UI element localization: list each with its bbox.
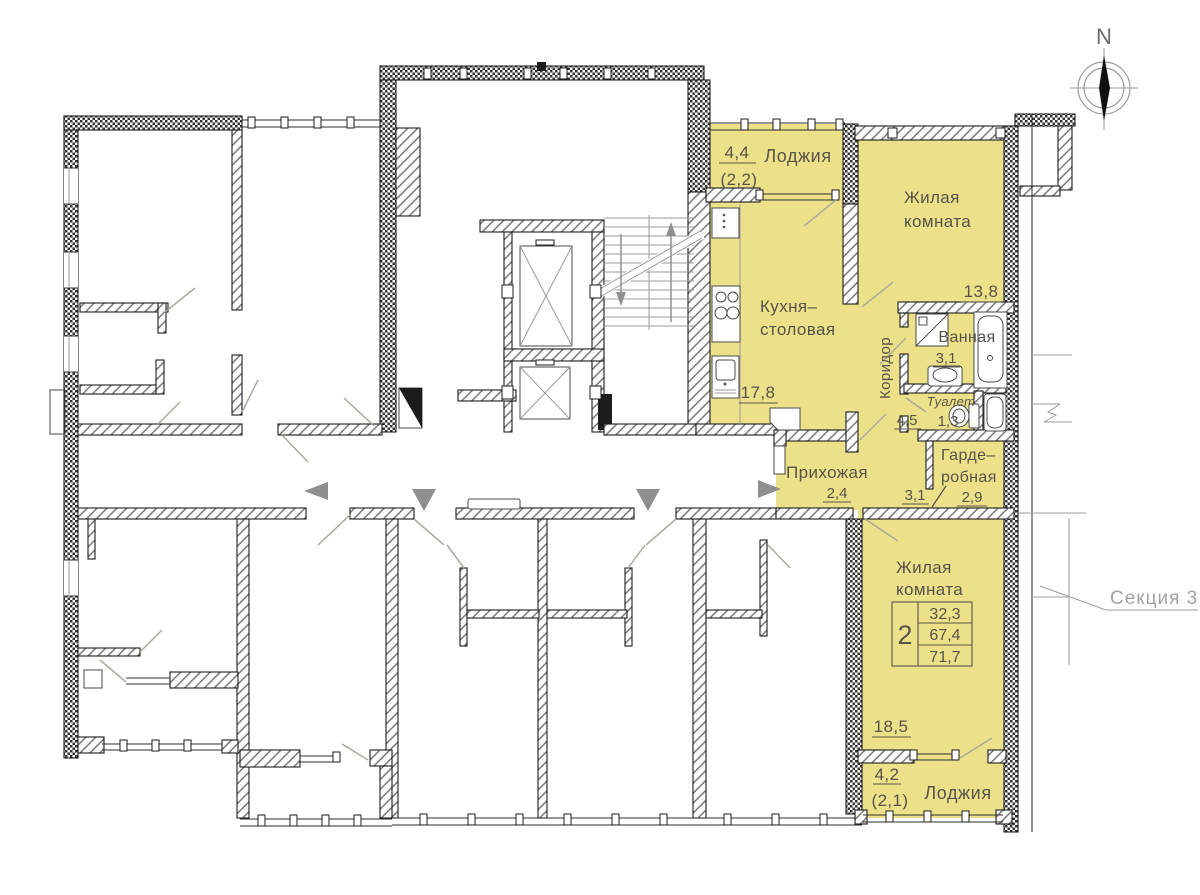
room-label-wc: Туалет bbox=[927, 394, 976, 409]
elevators bbox=[502, 240, 601, 419]
stairs-up-arrow bbox=[666, 222, 676, 236]
stairwell bbox=[598, 215, 702, 330]
north-label: N bbox=[1096, 24, 1112, 49]
room-label-loggia-bottom: Лоджия bbox=[924, 783, 991, 803]
area-reduced-loggia-bottom: (2,1) bbox=[872, 791, 909, 810]
area-hallway: 2,4 bbox=[827, 485, 848, 502]
summary-total-area: 71,7 bbox=[929, 649, 960, 666]
room-label-corridor: Коридор bbox=[877, 337, 894, 399]
north-arrow: N bbox=[1070, 24, 1138, 130]
room-label-living-bottom-1: Жилая bbox=[896, 558, 952, 577]
area-reduced-loggia-top: (2,2) bbox=[721, 170, 758, 189]
summary-living-area: 32,3 bbox=[929, 606, 960, 623]
room-label-kitchen-2: столовая bbox=[760, 320, 835, 339]
room-label-living-top-1: Жилая bbox=[904, 188, 960, 207]
room-label-living-top-2: комната bbox=[904, 212, 971, 231]
room-label-kitchen-1: Кухня– bbox=[760, 297, 817, 316]
area-wardrobe-adjacent: 3,1 bbox=[905, 487, 926, 504]
area-loggia-bottom: 4,2 bbox=[875, 765, 900, 784]
area-bathroom: 3,1 bbox=[936, 350, 957, 367]
room-label-loggia-top: Лоджия bbox=[764, 146, 831, 166]
room-label-living-bottom-2: комната bbox=[896, 580, 963, 599]
entrance-arrow-left bbox=[304, 482, 328, 500]
entrance-arrow-down-1 bbox=[412, 489, 436, 511]
bath-sink-icon bbox=[928, 366, 962, 386]
section-callout-label: Секция 3 bbox=[1110, 588, 1198, 609]
area-wc: 1,3 bbox=[938, 413, 959, 430]
room-label-bathroom: Ванная bbox=[938, 329, 995, 346]
room-label-wardrobe-1: Гарде– bbox=[941, 447, 996, 464]
stove-icon bbox=[712, 286, 740, 342]
radiator bbox=[468, 499, 520, 509]
area-living-top: 13,8 bbox=[964, 282, 999, 301]
floor-plan: 4,4 (2,2) Лоджия Жилая комната 13,8 Кухн… bbox=[0, 0, 1200, 895]
area-loggia-top: 4,4 bbox=[725, 143, 750, 162]
area-corridor: 4,5 bbox=[897, 412, 918, 429]
kitchen-sink-icon bbox=[712, 356, 739, 398]
area-kitchen: 17,8 bbox=[741, 383, 776, 402]
entrance-arrow-down-2 bbox=[636, 489, 660, 511]
area-wardrobe: 2,9 bbox=[962, 489, 983, 506]
entrance-arrows bbox=[304, 480, 781, 511]
summary-floor-area: 67,4 bbox=[929, 627, 960, 644]
compass-needle bbox=[1099, 55, 1110, 121]
bathtub-icon bbox=[974, 312, 1007, 388]
shower-tray-icon bbox=[984, 394, 1006, 431]
summary-rooms-count: 2 bbox=[897, 620, 912, 650]
hall-closet bbox=[770, 408, 800, 430]
section-callout: Секция 3 bbox=[1040, 586, 1198, 610]
room-label-hallway: Прихожая bbox=[786, 463, 868, 482]
fridge-icon bbox=[712, 208, 739, 238]
area-living-bottom: 18,5 bbox=[874, 717, 909, 736]
room-label-wardrobe-2: робная bbox=[941, 469, 997, 486]
